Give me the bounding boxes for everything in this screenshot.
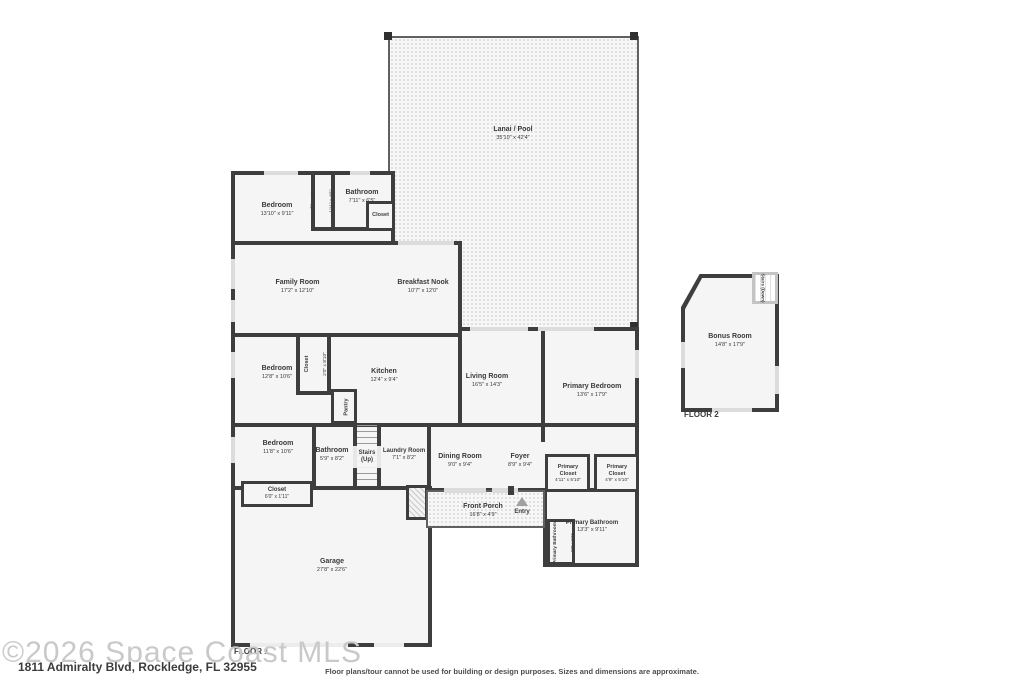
- utility-hatch-area: [406, 485, 428, 520]
- window: [444, 488, 486, 493]
- wall: [427, 423, 431, 487]
- room-pantry: [331, 389, 357, 424]
- wall: [296, 391, 331, 395]
- floorplan-page: Lanai / Pool 35'10" x 42'4" Bedroom: [0, 0, 1024, 683]
- room-primary-closet-right: [594, 454, 639, 492]
- wall: [312, 423, 316, 487]
- window: [231, 352, 235, 378]
- window: [231, 437, 235, 463]
- window: [635, 350, 639, 378]
- room-family-breakfast: [231, 241, 462, 339]
- front-door: [508, 486, 514, 495]
- lanai-corner-post: [630, 32, 638, 40]
- wall: [377, 423, 381, 487]
- sliding-door: [538, 327, 594, 331]
- window: [264, 171, 298, 175]
- stairs-up-treads: [357, 425, 377, 485]
- window: [681, 342, 685, 368]
- window: [775, 366, 779, 394]
- room-closet-bath: [366, 201, 395, 231]
- room-primary-closet-left: [545, 454, 590, 492]
- room-front-porch: [426, 490, 545, 528]
- wall: [327, 335, 331, 395]
- floor2-label: FLOOR 2: [684, 410, 719, 419]
- window: [231, 259, 235, 289]
- wall: [311, 171, 315, 231]
- room-closet-hall: [241, 481, 313, 507]
- wall: [541, 327, 545, 442]
- room-garage: [231, 486, 432, 647]
- disclaimer-text: Floor plans/tour cannot be used for buil…: [0, 667, 1024, 676]
- lanai-corner-post: [384, 32, 392, 40]
- sliding-door: [470, 327, 528, 331]
- window: [350, 171, 370, 175]
- entry-arrow-icon: [516, 497, 528, 506]
- room-primary-bathroom-wc: [547, 519, 575, 565]
- wall: [331, 171, 335, 231]
- window: [231, 300, 235, 322]
- window: [492, 488, 518, 493]
- wall: [296, 335, 300, 395]
- sliding-door: [398, 241, 454, 245]
- room-stairs-down: [752, 272, 778, 304]
